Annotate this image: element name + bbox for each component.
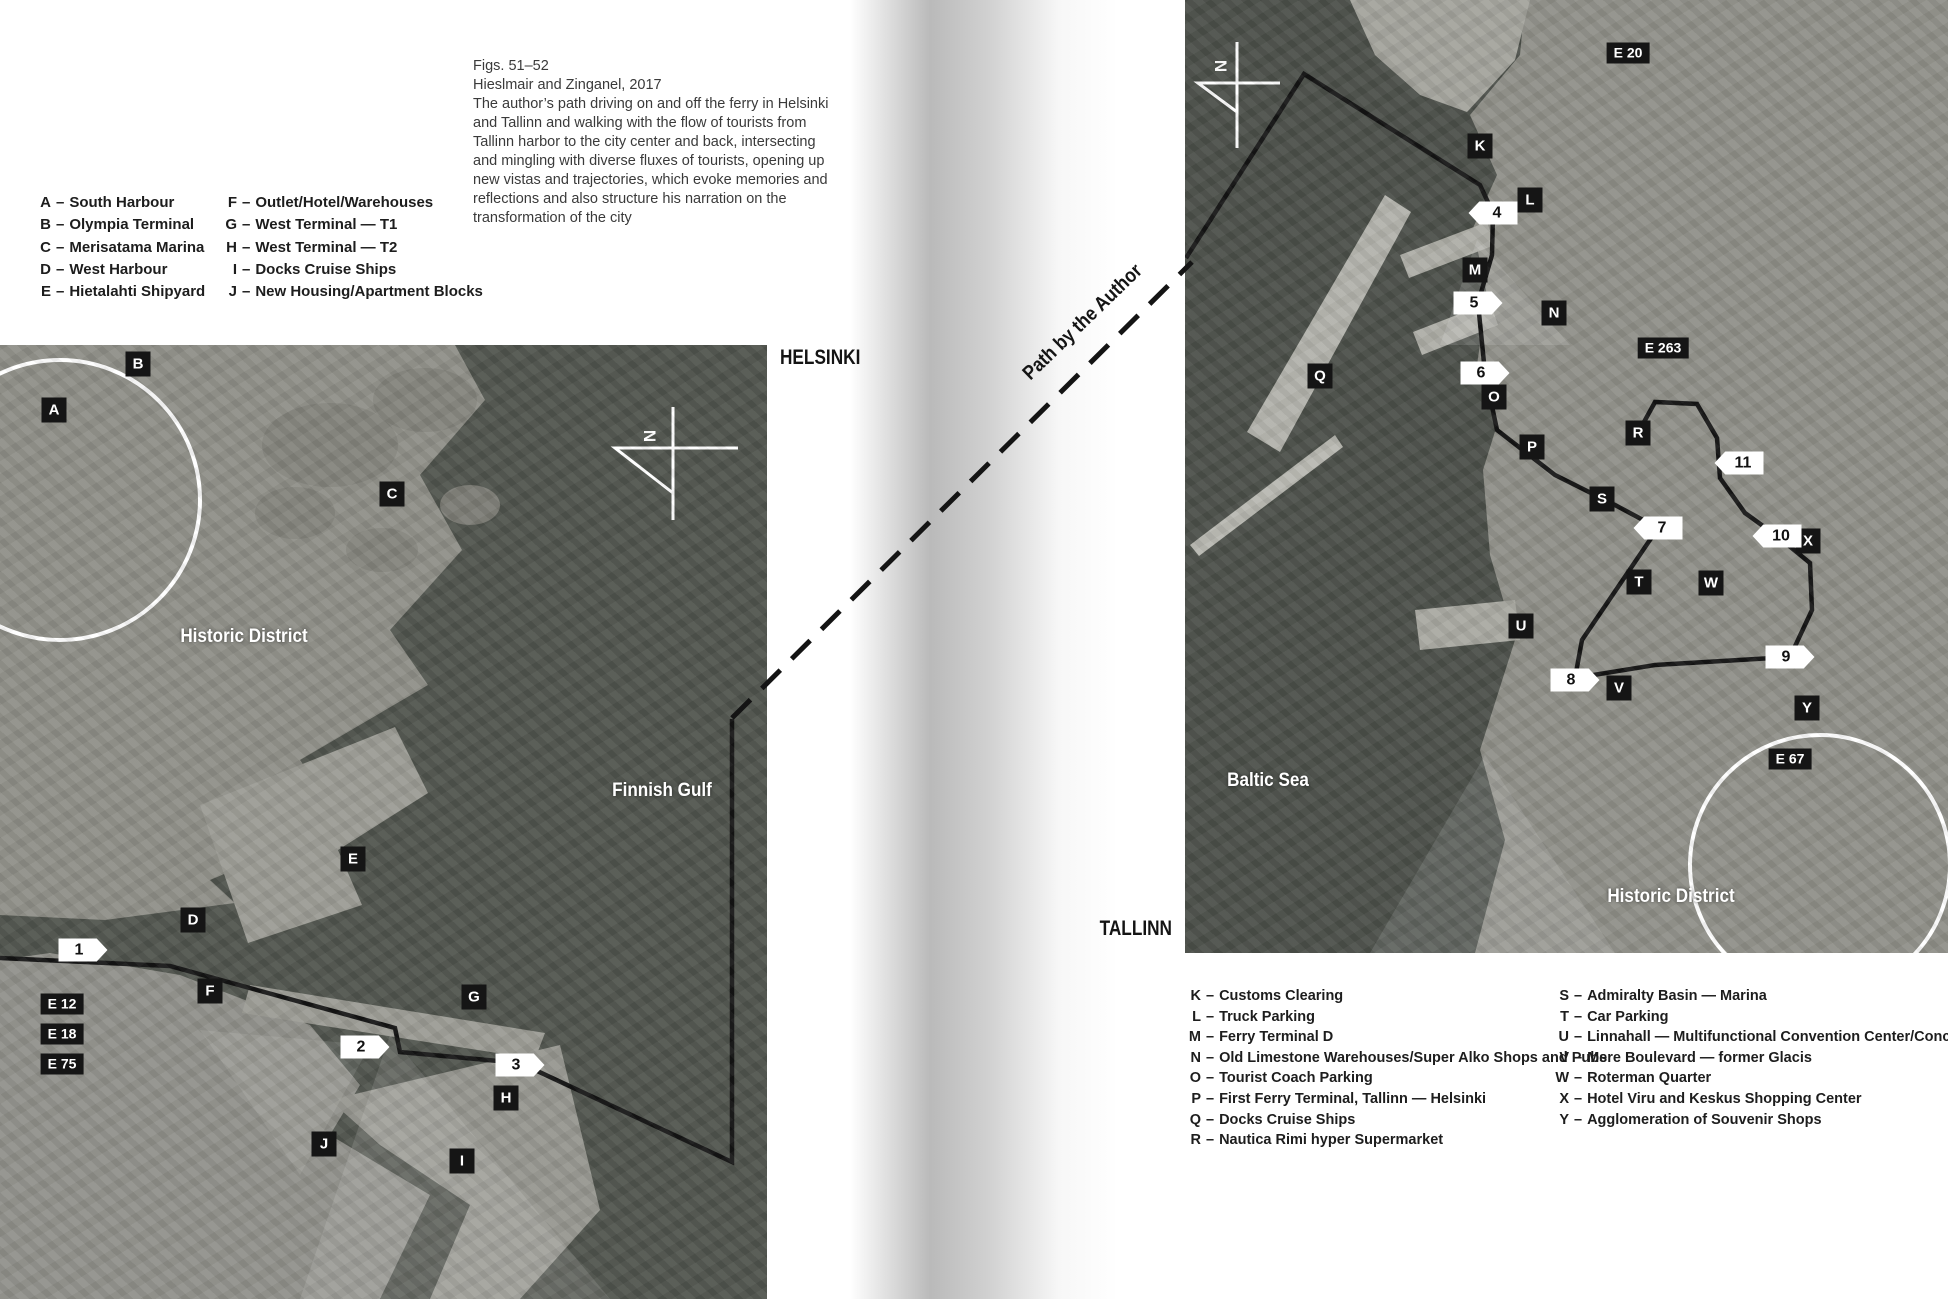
poi-marker-j: J [312,1132,337,1157]
page-fold-shadow [850,0,1118,1299]
legend-item-s: S–Admiralty Basin — Marina [1553,986,1948,1007]
legend-item-text: R [1185,1130,1201,1151]
legend-item-f: F–Outlet/Hotel/Warehouses [222,192,483,214]
poi-marker-n: N [1542,301,1567,326]
poi-marker-d: D [181,908,206,933]
legend-item-text: K [1185,986,1201,1007]
poi-marker-s: S [1590,487,1615,512]
legend-item-text: Linnahall — Multifunctional Convention C… [1587,1029,1948,1045]
legend-item-text: – [1569,1091,1587,1107]
poi-marker-m: M [1463,258,1488,283]
helsinki-legend-col2: F–Outlet/Hotel/WarehousesG–West Terminal… [222,192,483,303]
legend-item-a: A–South Harbour [36,192,205,214]
legend-item-text: Docks Cruise Ships [255,261,396,278]
legend-item-text: – [51,283,69,300]
tallinn-title: TALLINN [1049,917,1172,941]
poi-marker-w: W [1699,571,1724,596]
legend-item-text: C [36,237,51,259]
legend-item-text: – [1201,988,1219,1004]
tallinn-map: N KLMNOPQRSTUVWXYE 20E 263E 674567891011… [1185,0,1948,953]
legend-item-h: H–West Terminal — T2 [222,237,483,259]
legend-item-text: L [1185,1007,1201,1028]
legend-item-text: West Terminal — T2 [255,239,397,256]
legend-item-text: J [222,281,237,303]
legend-item-text: Agglomeration of Souvenir Shops [1587,1112,1821,1128]
legend-item-text: – [1569,1050,1587,1066]
legend-item-text: – [1201,1009,1219,1025]
legend-item-text: Admiralty Basin — Marina [1587,988,1767,1004]
legend-item-text: D [36,259,51,281]
legend-item-text: Y [1553,1110,1569,1131]
poi-marker-r: R [1626,421,1651,446]
legend-item-text: West Terminal — T1 [255,216,397,233]
legend-item-b: B–Olympia Terminal [36,214,205,236]
legend-item-text: – [1201,1132,1219,1148]
legend-item-text: Old Limestone Warehouses/Super Alko Shop… [1219,1050,1607,1066]
legend-item-text: – [1569,1112,1587,1128]
legend-item-text: Docks Cruise Ships [1219,1112,1355,1128]
legend-item-text: Car Parking [1587,1009,1668,1025]
legend-item-text: – [1569,988,1587,1004]
poi-marker-e: E [341,847,366,872]
road-marker-e-75: E 75 [41,1054,84,1075]
legend-item-text: O [1185,1068,1201,1089]
road-marker-e-12: E 12 [41,994,84,1015]
legend-item-text: – [1201,1050,1219,1066]
legend-item-text: – [237,283,255,300]
poi-marker-b: B [126,352,151,377]
poi-marker-c: C [380,482,405,507]
caption-fig-number: Figs. 51–52 [473,57,833,76]
poi-marker-u: U [1509,614,1534,639]
legend-item-text: T [1553,1007,1569,1028]
legend-item-text: West Harbour [69,261,167,278]
figure-caption: Figs. 51–52 Hieslmair and Zinganel, 2017… [473,57,833,228]
poi-marker-k: K [1468,134,1493,159]
legend-item-text: – [237,216,255,233]
north-letter: N [1211,60,1230,72]
legend-item-l: L–Truck Parking [1185,1007,1607,1028]
area-label-finnish-gulf: Finnish Gulf [612,780,712,802]
legend-item-text: – [1569,1070,1587,1086]
legend-item-text: G [222,214,237,236]
legend-item-text: Q [1185,1110,1201,1131]
poi-marker-y: Y [1795,696,1820,721]
poi-marker-g: G [462,985,487,1010]
road-marker-e-263: E 263 [1638,338,1689,359]
caption-authors: Hieslmair and Zinganel, 2017 [473,76,833,95]
legend-item-m: M–Ferry Terminal D [1185,1027,1607,1048]
legend-item-p: P–First Ferry Terminal, Tallinn — Helsin… [1185,1089,1607,1110]
legend-item-text: V [1553,1048,1569,1069]
area-label-historic-district: Historic District [1607,886,1734,908]
legend-item-text: Hietalahti Shipyard [69,283,205,300]
legend-item-o: O–Tourist Coach Parking [1185,1068,1607,1089]
helsinki-legend-col1: A–South HarbourB–Olympia TerminalC–Meris… [36,192,205,303]
legend-item-text: Ferry Terminal D [1219,1029,1333,1045]
tallinn-map-image: N [1185,0,1948,953]
legend-item-text: South Harbour [69,194,174,211]
legend-item-text: Outlet/Hotel/Warehouses [255,194,433,211]
legend-item-text: – [237,261,255,278]
legend-item-text: F [222,192,237,214]
legend-item-text: I [222,259,237,281]
road-marker-e-20: E 20 [1607,43,1650,64]
area-label-historic-district: Historic District [180,626,307,648]
legend-item-text: First Ferry Terminal, Tallinn — Helsinki [1219,1091,1486,1107]
legend-item-t: T–Car Parking [1553,1007,1948,1028]
path-by-author-label: Path by the Author [1009,250,1158,395]
poi-marker-p: P [1520,435,1545,460]
legend-item-text: P [1185,1089,1201,1110]
legend-item-text: – [1201,1112,1219,1128]
legend-item-text: – [1569,1029,1587,1045]
legend-item-v: V–Mere Boulevard — former Glacis [1553,1048,1948,1069]
legend-item-e: E–Hietalahti Shipyard [36,281,205,303]
legend-item-text: Mere Boulevard — former Glacis [1587,1050,1812,1066]
legend-item-x: X–Hotel Viru and Keskus Shopping Center [1553,1089,1948,1110]
legend-item-text: Tourist Coach Parking [1219,1070,1373,1086]
poi-marker-l: L [1518,188,1543,213]
legend-item-text: Truck Parking [1219,1009,1315,1025]
legend-item-n: N–Old Limestone Warehouses/Super Alko Sh… [1185,1048,1607,1069]
legend-item-u: U–Linnahall — Multifunctional Convention… [1553,1027,1948,1048]
legend-item-text: B [36,214,51,236]
legend-item-text: W [1553,1068,1569,1089]
legend-item-j: J–New Housing/Apartment Blocks [222,281,483,303]
legend-item-text: Nautica Rimi hyper Supermarket [1219,1132,1443,1148]
legend-item-text: Roterman Quarter [1587,1070,1711,1086]
legend-item-c: C–Merisatama Marina [36,237,205,259]
poi-marker-q: Q [1308,364,1333,389]
legend-item-w: W–Roterman Quarter [1553,1068,1948,1089]
legend-item-k: K–Customs Clearing [1185,986,1607,1007]
tallinn-legend-col2: S–Admiralty Basin — MarinaT–Car ParkingU… [1553,986,1948,1130]
legend-item-text: X [1553,1089,1569,1110]
legend-item-text: – [1201,1091,1219,1107]
legend-item-text: – [51,216,69,233]
tallinn-legend-col1: K–Customs ClearingL–Truck ParkingM–Ferry… [1185,986,1607,1151]
legend-item-text: E [36,281,51,303]
poi-marker-t: T [1627,570,1652,595]
legend-item-text: M [1185,1027,1201,1048]
legend-item-text: S [1553,986,1569,1007]
north-letter: N [640,430,659,442]
legend-item-text: A [36,192,51,214]
poi-marker-i: I [450,1149,475,1174]
area-label-baltic-sea: Baltic Sea [1227,770,1309,792]
legend-item-text: – [1569,1009,1587,1025]
legend-item-i: I–Docks Cruise Ships [222,259,483,281]
legend-item-text: – [237,239,255,256]
helsinki-title: HELSINKI [780,346,860,370]
book-spread: A–South HarbourB–Olympia TerminalC–Meris… [0,0,1948,1299]
legend-item-text: – [1201,1029,1219,1045]
legend-item-text: – [237,194,255,211]
legend-item-r: R–Nautica Rimi hyper Supermarket [1185,1130,1607,1151]
legend-item-text: U [1553,1027,1569,1048]
legend-item-text: Olympia Terminal [69,216,194,233]
legend-item-g: G–West Terminal — T1 [222,214,483,236]
legend-item-text: H [222,237,237,259]
legend-item-text: Merisatama Marina [69,239,204,256]
road-marker-e-67: E 67 [1769,749,1812,770]
legend-item-text: – [51,261,69,278]
legend-item-text: Customs Clearing [1219,988,1343,1004]
legend-item-d: D–West Harbour [36,259,205,281]
caption-body: The author’s path driving on and off the… [473,95,833,228]
poi-marker-h: H [494,1086,519,1111]
legend-item-y: Y–Agglomeration of Souvenir Shops [1553,1110,1948,1131]
legend-item-q: Q–Docks Cruise Ships [1185,1110,1607,1131]
helsinki-map: N ABCDEFGHIJE 12E 18E 75123Historic Dist… [0,345,767,1299]
road-marker-e-18: E 18 [41,1024,84,1045]
legend-item-text: N [1185,1048,1201,1069]
poi-marker-a: A [42,398,67,423]
legend-item-text: Hotel Viru and Keskus Shopping Center [1587,1091,1861,1107]
legend-item-text: – [1201,1070,1219,1086]
legend-item-text: – [51,194,69,211]
poi-marker-v: V [1607,676,1632,701]
legend-item-text: – [51,239,69,256]
poi-marker-f: F [198,979,223,1004]
poi-marker-o: O [1482,385,1507,410]
legend-item-text: New Housing/Apartment Blocks [255,283,483,300]
